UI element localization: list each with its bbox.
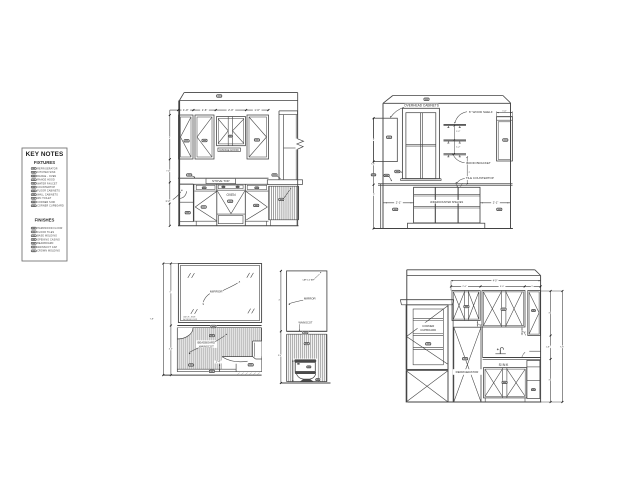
svg-text:SINK: SINK (499, 363, 509, 367)
svg-text:CUPBOARD: CUPBOARD (420, 328, 436, 332)
svg-text:STOVE TOP: STOVE TOP (212, 179, 230, 183)
svg-text:7'-8": 7'-8" (150, 319, 154, 321)
svg-text:6": 6" (524, 332, 526, 334)
svg-text:7'-8": 7'-8" (166, 170, 170, 172)
svg-text:WAINSCOT CAP: WAINSCOT CAP (37, 246, 57, 249)
svg-text:CORNER CUPBOARD: CORNER CUPBOARD (37, 205, 64, 208)
svg-text:3'-6": 3'-6" (278, 355, 282, 357)
svg-text:1'-8": 1'-8" (546, 346, 550, 348)
svg-text:1'-6": 1'-6" (202, 108, 208, 112)
svg-text:7'-8": 7'-8" (560, 346, 564, 348)
svg-text:1'-6": 1'-6" (502, 111, 506, 113)
svg-text:WAINSCOT: WAINSCOT (199, 344, 214, 348)
svg-text:REFRIGERATOR: REFRIGERATOR (37, 167, 58, 170)
svg-text:CORNER SINK: CORNER SINK (37, 202, 55, 204)
svg-text:7'-8": 7'-8" (371, 164, 375, 166)
svg-text:BASE MOLDING: BASE MOLDING (37, 235, 57, 238)
svg-text:TILE COUNTERTOP: TILE COUNTERTOP (466, 176, 494, 180)
svg-text:CROWN MOLDING: CROWN MOLDING (37, 251, 60, 253)
svg-text:1'-4": 1'-4" (216, 361, 221, 364)
svg-text:6" WOOD SHELF: 6" WOOD SHELF (469, 110, 493, 114)
svg-text:3'-0": 3'-0" (500, 286, 505, 288)
svg-text:FINISHES: FINISHES (35, 218, 55, 223)
svg-text:OVEN: OVEN (226, 193, 236, 197)
svg-text:3'-6": 3'-6" (169, 349, 173, 351)
svg-text:6": 6" (480, 325, 482, 327)
svg-text:FIXTURES: FIXTURES (34, 160, 55, 165)
svg-text:MIRROR: MIRROR (210, 290, 223, 294)
svg-text:1'-2": 1'-2" (456, 131, 460, 133)
svg-text:FLOOR CABINETS: FLOOR CABINETS (37, 190, 60, 193)
svg-text:CAP 6'-0" AFF: CAP 6'-0" AFF (302, 278, 315, 281)
svg-text:1'-0": 1'-0" (183, 108, 189, 112)
svg-text:1'-2": 1'-2" (165, 199, 170, 203)
svg-text:OVERHEAD CABINETS: OVERHEAD CABINETS (404, 103, 439, 107)
svg-text:KEY NOTES: KEY NOTES (26, 151, 64, 158)
svg-text:WOOD BRACKET: WOOD BRACKET (466, 161, 491, 165)
svg-text:2'-1": 2'-1" (396, 201, 402, 205)
svg-text:2'-0": 2'-0" (228, 108, 234, 112)
svg-text:RANGE - OVEN: RANGE - OVEN (37, 175, 56, 178)
svg-text:4'-0": 4'-0" (493, 280, 498, 282)
svg-text:2'-1": 2'-1" (493, 201, 499, 205)
svg-text:REFRIGERATOR: REFRIGERATOR (456, 370, 479, 374)
svg-text:WAINSCOT: WAINSCOT (299, 320, 313, 324)
svg-text:RANGE HOOD: RANGE HOOD (37, 179, 55, 182)
svg-text:1'-2": 1'-2" (456, 147, 460, 149)
svg-text:OPENING CASING: OPENING CASING (37, 238, 60, 241)
svg-text:FLOOR TILES: FLOOR TILES (37, 232, 54, 234)
svg-text:RANGE HOOD: RANGE HOOD (220, 148, 239, 152)
svg-text:UNDERCOUNTER SHELVES: UNDERCOUNTER SHELVES (430, 201, 464, 204)
svg-text:1'-6": 1'-6" (254, 108, 260, 112)
svg-text:WATER FAUCET: WATER FAUCET (37, 182, 58, 185)
svg-text:ACCESS DOOR: ACCESS DOOR (183, 318, 198, 321)
svg-text:WALL CABINETS: WALL CABINETS (37, 193, 58, 196)
svg-text:WC TOILET: WC TOILET (37, 198, 52, 200)
svg-text:BEADBOARD: BEADBOARD (37, 242, 53, 245)
svg-text:HARDWOOD FLOOR: HARDWOOD FLOOR (37, 227, 62, 230)
svg-text:COUNTERTOP: COUNTERTOP (37, 187, 55, 189)
svg-text:MIRROR: MIRROR (304, 296, 316, 300)
svg-text:KITCHEN SINK: KITCHEN SINK (37, 172, 56, 174)
svg-text:2'-0": 2'-0" (462, 286, 467, 288)
